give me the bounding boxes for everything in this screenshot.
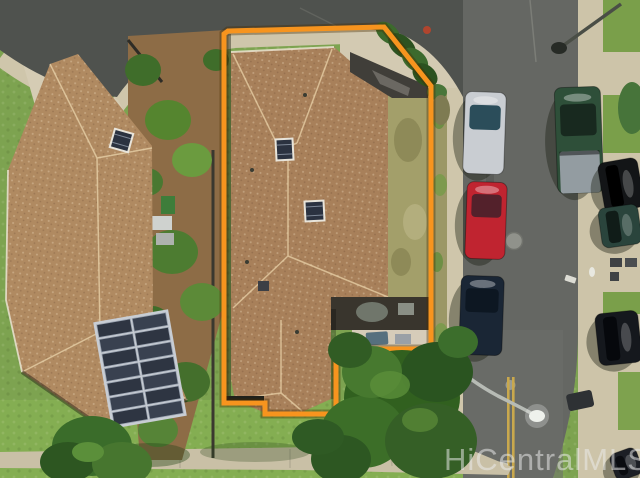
aerial-scene: HiCentralMLS — [0, 0, 640, 478]
garden-tree-2 — [145, 100, 191, 140]
garden-tree-4 — [172, 143, 212, 177]
canopy — [292, 419, 344, 455]
canopy-highlight — [370, 371, 410, 399]
utility-box-grey — [156, 233, 174, 245]
roof-vent-1 — [250, 168, 254, 172]
patio-furniture — [356, 302, 388, 322]
roof-vent-3 — [303, 93, 307, 97]
roof-vent-4 — [295, 330, 299, 334]
skylight-glass — [277, 140, 293, 160]
yard-patch-2 — [403, 204, 427, 240]
garden-tree-7 — [180, 283, 224, 321]
skylight-glass — [306, 202, 324, 221]
yard-patch-1 — [394, 118, 422, 162]
watermark-text: HiCentralMLS — [444, 442, 640, 477]
car-glass — [560, 103, 597, 136]
streetlight-head-top — [551, 42, 567, 54]
streetlight-head-bottom — [529, 410, 545, 422]
car-glass — [469, 105, 501, 131]
car-glass — [471, 194, 502, 218]
patio-table — [398, 303, 414, 315]
right-grass-4 — [618, 372, 640, 430]
roof-vent-2 — [245, 260, 249, 264]
garden-tree-1 — [125, 54, 161, 86]
right-grass-1 — [603, 0, 640, 52]
patio-bench — [395, 334, 411, 344]
canopy — [438, 326, 478, 358]
canopy-highlight — [72, 442, 104, 462]
canopy-highlight — [402, 408, 438, 432]
utility-box-white — [152, 216, 172, 230]
tree-shadow-2 — [200, 442, 310, 462]
aerial-photo: HiCentralMLS — [0, 0, 640, 478]
pedestrian-figure — [589, 267, 595, 277]
canopy — [328, 332, 372, 368]
right-grass-3 — [603, 292, 640, 314]
subject-roof-skylight-lower — [303, 199, 325, 222]
mailbox-2 — [625, 258, 637, 267]
car-glass — [465, 288, 499, 313]
mailbox-3 — [610, 272, 619, 281]
roof-vent-box — [258, 281, 269, 291]
mailbox-1 — [610, 258, 622, 267]
manhole-cover — [506, 233, 523, 250]
yard-patch-3 — [391, 248, 411, 276]
subject-roof-skylight-upper — [274, 138, 294, 162]
fire-hydrant — [423, 26, 431, 34]
green-bin — [161, 196, 175, 214]
